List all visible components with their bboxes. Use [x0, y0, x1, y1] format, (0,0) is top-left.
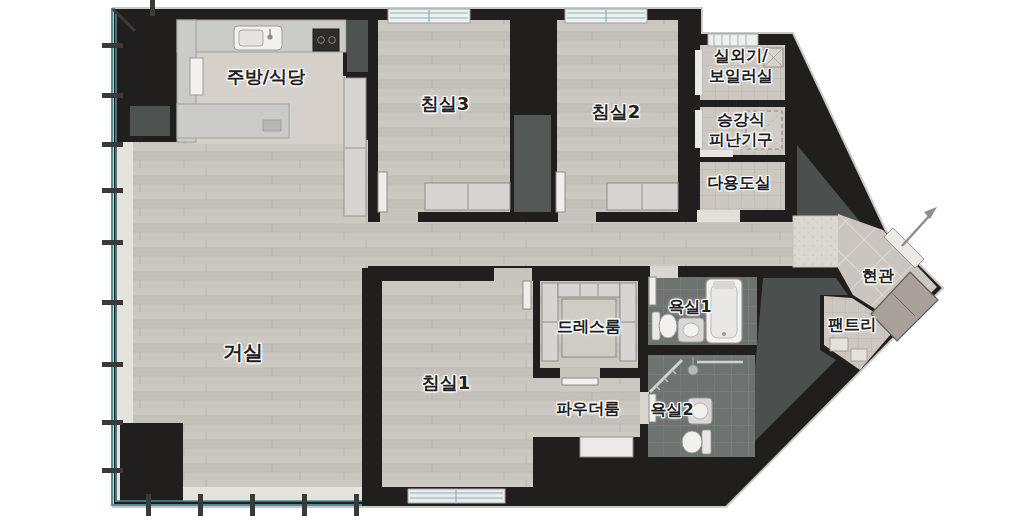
- toilet2-tank: [702, 430, 711, 454]
- label-bedroom1: 침실1: [422, 372, 471, 395]
- label-bathroom1: 욕실1: [668, 297, 711, 317]
- bathtub-drain: [722, 332, 726, 336]
- bedroom-divider-inset: [514, 115, 551, 212]
- powder-cabinet: [580, 437, 633, 457]
- toilet1-bowl: [659, 314, 677, 338]
- bedroom1-door-opening: [494, 268, 532, 281]
- bathroom2-sink-basin: [692, 403, 708, 419]
- label-dressroom: 드레스룸: [557, 317, 621, 337]
- label-evac-device: 승강식 피난기구: [709, 110, 773, 150]
- pantry-shelf-1: [830, 338, 848, 351]
- label-outdoor-boiler: 실외기/ 보일러실: [709, 46, 773, 86]
- kitchen-faucet: [267, 34, 272, 39]
- corridor-floor: [350, 222, 795, 266]
- toilet2-bowl: [682, 431, 702, 453]
- entry-mat: [793, 216, 840, 267]
- kitchen-sink-basin: [239, 30, 263, 46]
- label-outdoor-boiler-line1: 실외기/: [709, 46, 773, 66]
- dressroom-closet-top: [558, 283, 620, 297]
- bedroom1-door-leaf: [523, 281, 531, 309]
- label-living: 거실: [223, 340, 263, 365]
- bedroom2-window: [565, 9, 647, 23]
- dressroom-door-leaf: [562, 378, 598, 385]
- kitchen-appliance: [190, 58, 203, 95]
- bedroom2-door-leaf: [556, 172, 565, 212]
- label-bedroom2: 침실2: [592, 101, 641, 124]
- utility-door-opening: [697, 210, 740, 222]
- label-powder: 파우더룸: [556, 399, 620, 419]
- bathtub-pillow: [713, 281, 735, 289]
- bedroom1-left-wall: [362, 268, 382, 492]
- bedroom1-window: [408, 489, 505, 503]
- label-entrance: 현관: [862, 266, 894, 286]
- bathroom1-door-leaf: [649, 277, 656, 305]
- label-pantry: 팬트리: [828, 315, 876, 335]
- bathtub-inner: [711, 284, 737, 338]
- label-bathroom2: 욕실2: [650, 400, 693, 420]
- evac-door-sill: [700, 150, 733, 157]
- boiler-side-vent: [695, 50, 702, 95]
- boiler-louver-window: [708, 34, 758, 46]
- label-evac-line1: 승강식: [709, 110, 773, 130]
- island-sink: [263, 120, 281, 131]
- bathroom1-sink-basin: [683, 323, 699, 337]
- label-evac-line2: 피난기구: [709, 130, 773, 150]
- tall-cabinet: [344, 78, 366, 216]
- bathroom1-door-opening: [650, 266, 678, 278]
- label-outdoor-boiler-line2: 보일러실: [709, 66, 773, 86]
- entry-arrow-shaft: [902, 214, 931, 246]
- label-bedroom3: 침실3: [421, 93, 470, 116]
- pantry-shelf-2: [851, 349, 867, 361]
- bathroom2-door-opening: [640, 392, 649, 424]
- label-utility: 다용도실: [707, 173, 771, 193]
- floor-plan-page: 주방/식당 침실3 침실2 거실 침실1 실외기/ 보일러실 승강식 피난기구 …: [0, 0, 1027, 527]
- bedroom3-window: [388, 9, 470, 23]
- fridge-inset: [347, 20, 368, 72]
- shower-head: [688, 365, 698, 375]
- floor-plan-drawing: [0, 0, 1027, 527]
- entry-arrow-head: [924, 207, 937, 219]
- evac-side-vent: [695, 110, 702, 148]
- living-corner-column: [120, 423, 183, 501]
- bedroom3-door-leaf: [378, 172, 387, 212]
- label-kitchen-dining: 주방/식당: [227, 66, 306, 89]
- kitchen-column-inset: [130, 106, 170, 136]
